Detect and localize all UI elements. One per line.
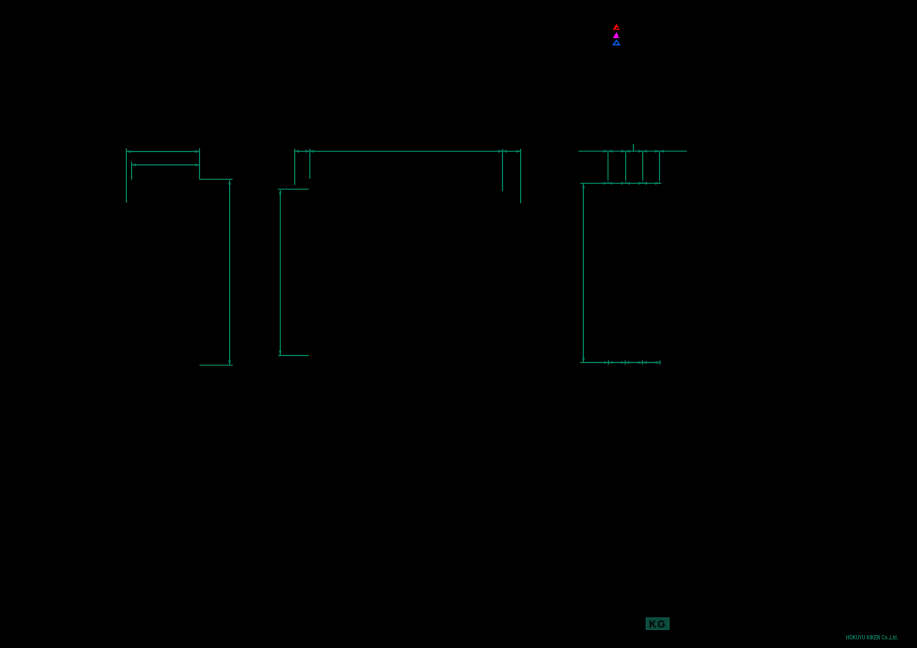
svg-text:HOKUYU KIKEN Co.,Ltd.: HOKUYU KIKEN Co.,Ltd. bbox=[846, 634, 898, 641]
svg-text:KG: KG bbox=[649, 619, 666, 630]
